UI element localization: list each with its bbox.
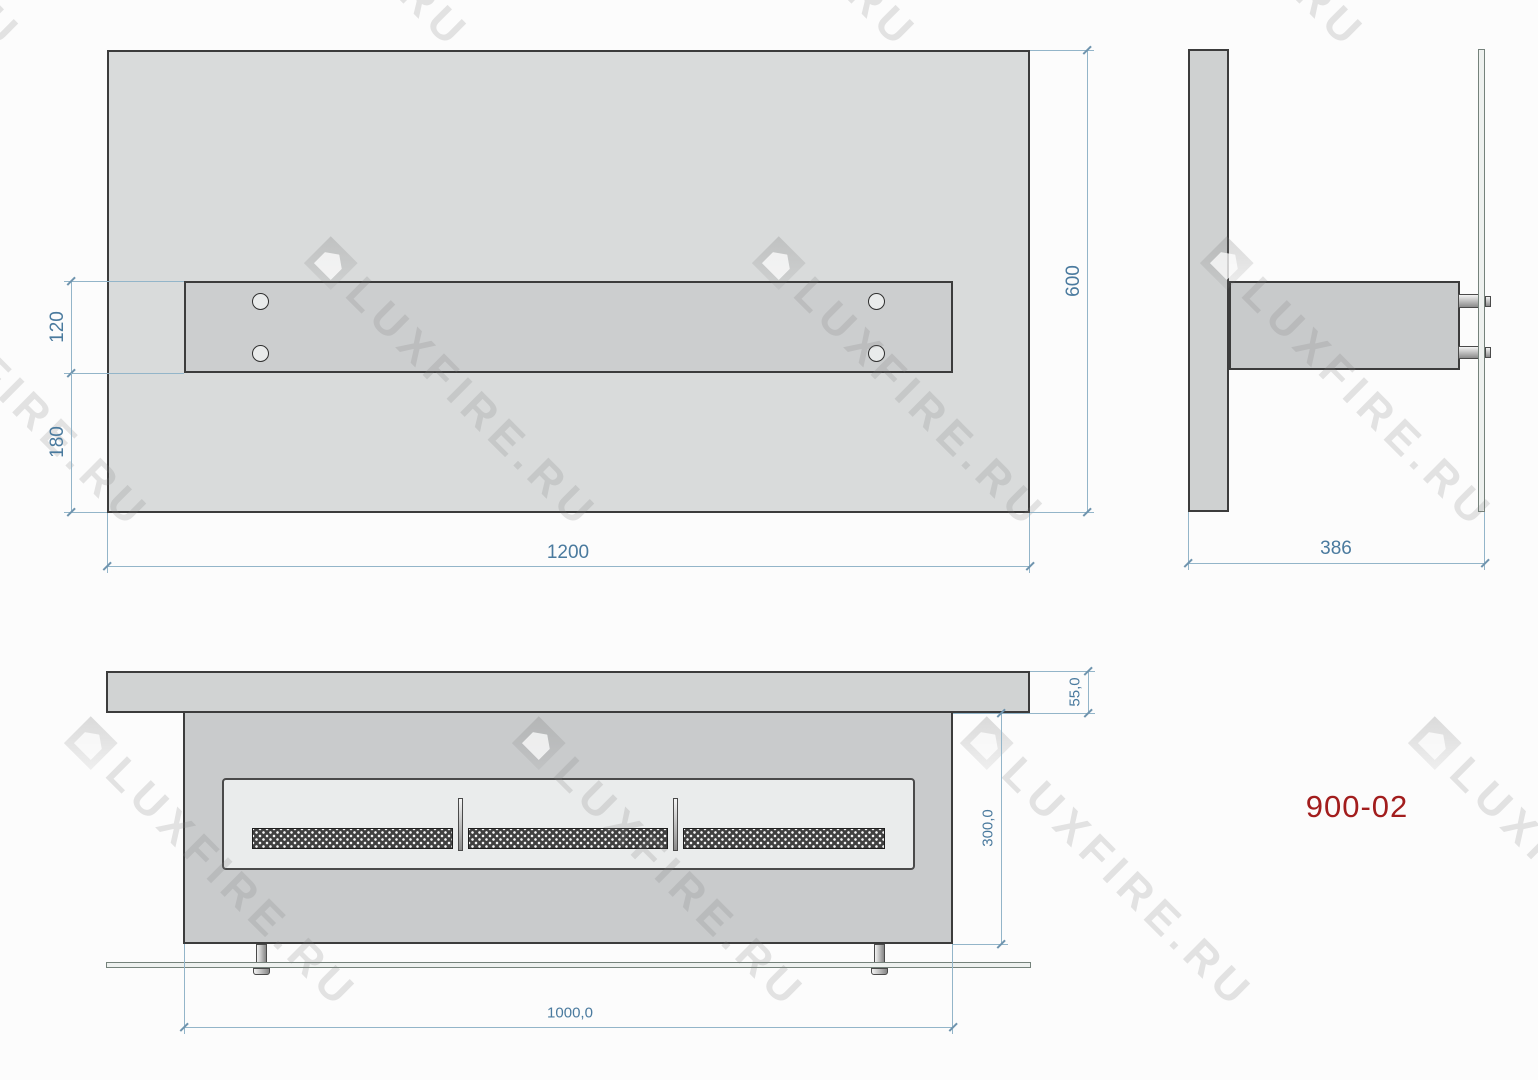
front-glass-base xyxy=(106,962,1031,968)
glass-standoff-leg xyxy=(874,944,885,964)
dim-line-120 xyxy=(71,281,72,373)
side-wall-panel xyxy=(1188,49,1229,512)
burner-grille xyxy=(252,828,453,849)
dim-text-120: 120 xyxy=(47,311,69,343)
dim-line-1000 xyxy=(184,1027,953,1028)
watermark-logo-icon xyxy=(1408,716,1462,770)
dim-line-180 xyxy=(71,373,72,512)
plan-mounting-bar xyxy=(184,281,953,373)
watermark-logo-icon xyxy=(64,716,118,770)
bolt-rod xyxy=(1458,346,1479,359)
dim-line-300 xyxy=(1001,713,1002,944)
watermark-tile: LUXFIRE.RU xyxy=(1196,232,1504,540)
watermark-text: LUXFIRE.RU xyxy=(1104,0,1376,60)
side-shelf-arm xyxy=(1229,281,1460,370)
burner-divider-rod xyxy=(673,798,678,851)
watermark-tile: LUXFIRE.RU xyxy=(1404,712,1538,1020)
front-shelf-top xyxy=(106,671,1030,713)
burner-grille xyxy=(683,828,885,849)
model-number-label: 900-02 xyxy=(1306,789,1409,825)
dim-text-600: 600 xyxy=(1063,265,1085,297)
extension-line xyxy=(952,944,953,1034)
mounting-hole xyxy=(252,345,269,362)
dim-line-386 xyxy=(1188,563,1485,564)
bolt-cap xyxy=(1485,296,1491,307)
mounting-hole xyxy=(252,293,269,310)
side-glass-panel xyxy=(1478,49,1485,512)
dim-text-1000: 1000,0 xyxy=(547,1005,593,1022)
dim-line-600 xyxy=(1087,50,1088,512)
dim-text-300: 300,0 xyxy=(980,809,997,847)
extension-line xyxy=(64,281,184,282)
watermark-text: LUXFIRE.RU xyxy=(0,0,31,60)
dim-line-55 xyxy=(1088,671,1089,713)
drawing-canvas: LUXFIRE.RULUXFIRE.RULUXFIRE.RULUXFIRE.RU… xyxy=(0,0,1538,1080)
mounting-hole xyxy=(868,293,885,310)
bolt-rod xyxy=(1458,294,1479,308)
mounting-hole xyxy=(868,345,885,362)
standoff-cap xyxy=(253,968,270,975)
bolt-cap xyxy=(1485,347,1491,358)
dim-text-1200: 1200 xyxy=(547,542,589,564)
extension-line xyxy=(953,713,1040,714)
watermark-logo-icon xyxy=(960,716,1014,770)
watermark-tile: LUXFIRE.RU xyxy=(0,0,31,60)
burner-divider-rod xyxy=(458,798,463,851)
dim-text-386: 386 xyxy=(1320,538,1352,560)
dim-text-55: 55,0 xyxy=(1067,677,1084,706)
standoff-cap xyxy=(871,968,888,975)
dim-line-1200 xyxy=(107,566,1030,567)
burner-insert xyxy=(222,778,915,870)
glass-standoff-leg xyxy=(256,944,267,964)
dim-text-180: 180 xyxy=(47,426,69,458)
watermark-text: LUXFIRE.RU xyxy=(992,748,1264,1020)
watermark-text: LUXFIRE.RU xyxy=(1440,748,1538,1020)
extension-line xyxy=(184,944,185,1034)
extension-line xyxy=(64,373,184,374)
burner-grille xyxy=(468,828,668,849)
